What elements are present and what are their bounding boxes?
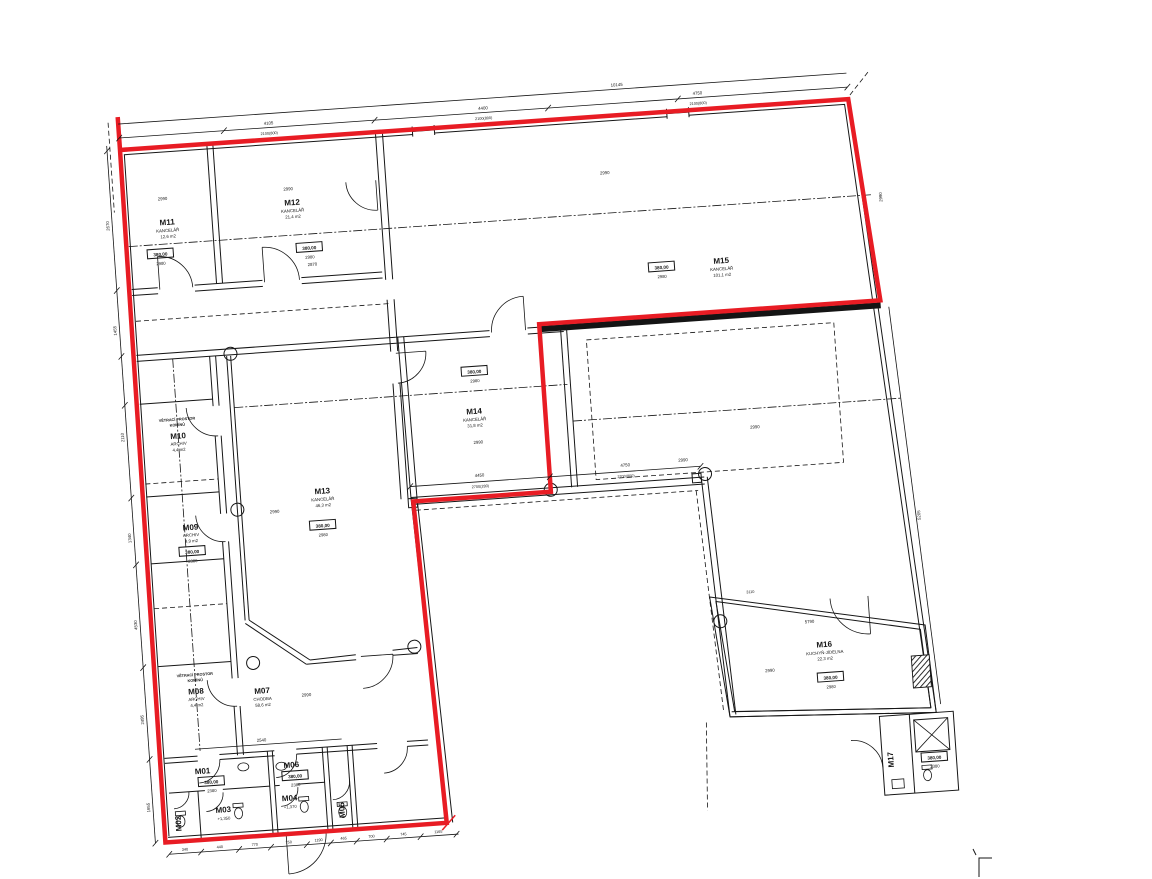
dim-label: 440 xyxy=(217,845,224,849)
room-m16-label: M16 KUCHYŇ-JÍDELNA 22,3 m2 2990 5790 311… xyxy=(746,584,844,674)
svg-text:M11: M11 xyxy=(159,217,175,227)
sink-fixture xyxy=(238,763,250,772)
svg-text:M01: M01 xyxy=(194,766,211,776)
dim-label: 2100(800) xyxy=(475,116,493,121)
svg-text:380,00: 380,00 xyxy=(185,549,200,555)
room-m07-label: M07 CHODBA 58,6 m2 2990 xyxy=(253,683,313,708)
room-m11-label: 2990 M11 KANCELÁŘ 12,6 m2 xyxy=(154,195,180,240)
plan-rotated-group: 4105 2100(800) 4400 2100(800) 4750 2100(… xyxy=(98,62,962,879)
interior-walls xyxy=(122,122,595,761)
svg-text:M02: M02 xyxy=(174,815,184,832)
svg-text:2990: 2990 xyxy=(765,668,775,674)
dim-label: 4400 xyxy=(478,105,488,111)
svg-text:22,3 m2: 22,3 m2 xyxy=(817,655,833,661)
sanitary-fixtures xyxy=(172,715,933,839)
svg-text:2990: 2990 xyxy=(283,186,293,192)
svg-text:2380: 2380 xyxy=(291,782,301,788)
dim-label: 2110 xyxy=(120,432,126,442)
svg-text:2380: 2380 xyxy=(188,558,198,564)
wc-fixture xyxy=(923,769,932,781)
dim-label: 1655 xyxy=(146,802,152,812)
svg-text:380,00: 380,00 xyxy=(288,773,303,779)
room-m06-label: M06 xyxy=(283,760,300,770)
svg-text:KANCELÁŘ: KANCELÁŘ xyxy=(311,496,334,503)
red-lease-boundary xyxy=(115,65,915,850)
dim-label: 10145 xyxy=(611,82,624,88)
svg-text:+1,370: +1,370 xyxy=(284,804,298,810)
svg-text:M08: M08 xyxy=(188,686,205,696)
svg-text:3110: 3110 xyxy=(746,590,754,595)
svg-text:KANCELÁŘ: KANCELÁŘ xyxy=(463,416,486,423)
wc-fixture xyxy=(300,801,309,813)
room-m13-label: M13 KANCELÁŘ 46,3 m2 2990 xyxy=(268,486,335,515)
svg-text:2980: 2980 xyxy=(470,378,480,384)
svg-text:380,00: 380,00 xyxy=(302,245,317,251)
svg-text:M15: M15 xyxy=(713,256,730,266)
dim-label: 465 xyxy=(340,836,347,840)
svg-text:380,00: 380,00 xyxy=(654,264,669,270)
dim-label: 2670 xyxy=(105,220,111,230)
room-m14-label: M14 KANCELÁŘ 31,8 m2 2990 xyxy=(462,406,488,446)
level-marks: 380,00 2980 380,00 2980 380,00 2980 380,… xyxy=(147,197,948,821)
svg-text:4,4 m2: 4,4 m2 xyxy=(172,447,186,453)
axis-lines xyxy=(108,69,929,849)
svg-text:380,00: 380,00 xyxy=(316,523,331,529)
svg-text:46,3 m2: 46,3 m2 xyxy=(315,502,331,508)
svg-text:KANCELÁŘ: KANCELÁŘ xyxy=(281,207,304,214)
svg-text:5790: 5790 xyxy=(805,619,815,625)
floor-plan-drawing: 4105 2100(800) 4400 2100(800) 4750 2100(… xyxy=(0,0,1152,879)
dim-label: 770 xyxy=(251,843,258,847)
dim-label: 1340 xyxy=(127,533,133,543)
svg-text:2990: 2990 xyxy=(600,170,610,176)
room-m09-label: M09 ARCHIV 4,9 m2 xyxy=(182,522,200,544)
svg-text:M14: M14 xyxy=(466,406,483,416)
svg-text:2380: 2380 xyxy=(930,763,940,769)
svg-text:31,8 m2: 31,8 m2 xyxy=(467,422,483,428)
svg-text:M17: M17 xyxy=(886,751,896,768)
svg-text:M07: M07 xyxy=(254,686,271,696)
thick-wall xyxy=(540,302,881,332)
svg-text:M03: M03 xyxy=(215,805,232,815)
room-m01-label: M01 xyxy=(194,766,211,776)
door-arcs xyxy=(131,148,887,879)
sink-fixture xyxy=(892,779,905,789)
room-labels: 2990 M11 KANCELÁŘ 12,6 m2 2990 M12 KANCE… xyxy=(130,147,897,832)
room-m02-label: M02 xyxy=(174,815,184,832)
dim-label: 2700(280) xyxy=(472,484,490,489)
level-mark-m17: 380,00 2380 xyxy=(921,751,948,769)
svg-text:4,9 m2: 4,9 m2 xyxy=(185,538,199,544)
svg-text:21,4 m2: 21,4 m2 xyxy=(285,214,301,220)
svg-text:380,00: 380,00 xyxy=(153,251,168,257)
svg-text:2980: 2980 xyxy=(826,684,836,690)
svg-text:2870: 2870 xyxy=(308,261,318,267)
top-dimension-texts: 4105 2100(800) 4400 2100(800) 4750 2100(… xyxy=(259,76,708,136)
svg-text:380,00: 380,00 xyxy=(927,755,942,761)
dim-label: 1165 xyxy=(434,830,442,835)
dim-label: 2540 xyxy=(257,737,267,743)
svg-text:+1,350: +1,350 xyxy=(217,815,231,821)
svg-text:M09: M09 xyxy=(182,522,199,532)
dim-label: 2495 xyxy=(139,714,145,724)
level-mark-m06: 380,00 2380 xyxy=(282,770,309,788)
level-mark-m11: 380,00 2980 xyxy=(147,248,174,267)
outer-walls xyxy=(117,96,942,843)
svg-text:2980: 2980 xyxy=(319,532,329,538)
room-m10-label: VĚTRACÍ PROSTOR KOMÍNŮ M10 ARCHIV 4,4 m2 xyxy=(159,415,198,453)
shaft-hatch xyxy=(911,655,931,688)
dim-label: 340 xyxy=(182,847,189,851)
dim-label: 750 xyxy=(285,840,292,844)
svg-text:2980: 2980 xyxy=(657,274,667,280)
room-m05-label: M05 xyxy=(337,801,347,818)
svg-text:2380: 2380 xyxy=(207,788,217,794)
svg-text:2990: 2990 xyxy=(302,692,312,698)
level-mark-m14: 380,00 2980 xyxy=(461,365,488,384)
svg-text:2980: 2980 xyxy=(156,261,166,267)
dim-label: 1190 xyxy=(314,838,322,843)
svg-text:M16: M16 xyxy=(816,640,833,650)
level-mark-m15: 380,00 2980 xyxy=(648,261,675,280)
dim-label: 2990 xyxy=(678,457,688,463)
corner-reference-mark xyxy=(973,849,992,877)
svg-text:KOMÍNŮ: KOMÍNŮ xyxy=(169,422,185,428)
columns xyxy=(220,314,728,670)
room-m17-label: M17 xyxy=(886,751,896,768)
dim-label: 2990 xyxy=(750,424,760,430)
level-mark-m16: 380,00 2980 xyxy=(817,671,844,690)
dim-label: 4105 xyxy=(264,120,274,126)
level-mark-m12: 380,00 2980 xyxy=(296,242,323,261)
svg-text:M13: M13 xyxy=(314,486,331,496)
dim-label: 2700(800) xyxy=(617,474,635,479)
svg-text:58,6 m2: 58,6 m2 xyxy=(255,702,271,708)
floor-plan-canvas: 4105 2100(800) 4400 2100(800) 4750 2100(… xyxy=(0,0,1152,879)
dim-label: 4530 xyxy=(133,620,139,630)
dim-label: 2100(800) xyxy=(260,131,278,136)
room-m03-label: M03 +1,350 xyxy=(215,805,232,822)
svg-text:12,6 m2: 12,6 m2 xyxy=(160,233,176,239)
dim-label: 5205 xyxy=(916,510,922,520)
svg-text:M10: M10 xyxy=(170,431,187,441)
svg-text:KOMÍNŮ: KOMÍNŮ xyxy=(187,677,203,683)
svg-text:M04: M04 xyxy=(282,793,299,803)
svg-text:2990: 2990 xyxy=(158,196,168,202)
svg-text:2990: 2990 xyxy=(473,439,483,445)
dim-label: 1455 xyxy=(112,325,118,335)
dim-label: 2100(800) xyxy=(689,101,707,106)
svg-text:M12: M12 xyxy=(284,198,301,208)
svg-text:2980: 2980 xyxy=(305,254,315,260)
kitchen-wing-walls xyxy=(710,581,959,807)
svg-text:M05: M05 xyxy=(337,801,347,818)
svg-text:KANCELÁŘ: KANCELÁŘ xyxy=(156,227,179,234)
dim-label: 700 xyxy=(368,834,375,838)
dim-label: 4450 xyxy=(475,472,485,478)
wc-fixture xyxy=(234,808,243,820)
svg-text:380,00: 380,00 xyxy=(204,779,219,785)
svg-text:101,1 m2: 101,1 m2 xyxy=(713,272,732,278)
dim-label: 2990 xyxy=(878,192,884,202)
svg-text:380,00: 380,00 xyxy=(467,369,482,375)
level-mark-m13: 380,00 2980 xyxy=(309,519,336,538)
dim-label: 745 xyxy=(400,832,407,836)
dim-label: 4750 xyxy=(620,462,630,468)
svg-text:2990: 2990 xyxy=(270,509,280,515)
room-m04-label: M04 +1,370 xyxy=(282,793,299,810)
svg-text:380,00: 380,00 xyxy=(823,675,838,681)
svg-text:4,4 m2: 4,4 m2 xyxy=(190,702,204,708)
svg-text:M06: M06 xyxy=(283,760,300,770)
dim-label: 4750 xyxy=(692,90,702,96)
